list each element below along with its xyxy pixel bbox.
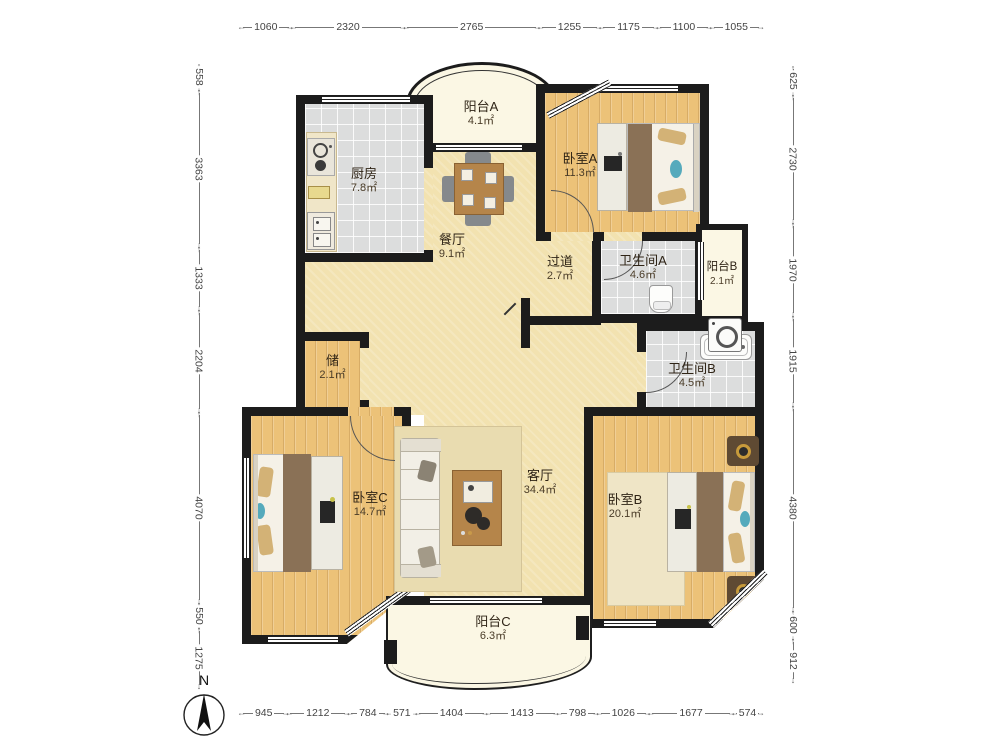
room-label-storage: 储 2.1㎡ (305, 353, 360, 382)
dim-segment: 2320 (292, 20, 405, 34)
room-name: 储 (326, 353, 339, 368)
dim-segment: 798 (558, 706, 598, 720)
window-bedroom-c-left (243, 458, 250, 558)
opening-bathroom-a-door (604, 232, 642, 241)
dim-label: 784 (357, 707, 379, 719)
dim-segment: 550 (192, 603, 206, 629)
dim-label: 1255 (556, 21, 583, 33)
window-balcony-c-top (430, 597, 542, 604)
room-name: 过道 (547, 254, 573, 269)
dim-label: 1333 (192, 265, 206, 292)
room-area: 7.8㎡ (351, 181, 377, 195)
room-label-bathroom-b: 卫生间B 4.5㎡ (654, 361, 730, 390)
dim-label: 945 (253, 707, 275, 719)
dim-label: 558 (192, 66, 206, 88)
bedroom-b-bed (723, 472, 755, 572)
kitchen-small-appliance (308, 186, 330, 199)
room-name: 卧室B (608, 492, 643, 507)
room-bathroom-b: 卫生间B 4.5㎡ (637, 322, 764, 418)
room-name: 客厅 (527, 468, 553, 483)
dining-table (454, 163, 504, 215)
opening-bedroom-c-door (348, 407, 394, 416)
room-label-balcony-a: 阳台A 4.1㎡ (439, 99, 523, 128)
dim-segment: 1055 (711, 20, 762, 34)
room-name: 卫生间B (668, 361, 716, 376)
dim-segment: 912 (786, 639, 800, 682)
room-balcony-c: 阳台C 6.3㎡ (386, 596, 592, 690)
dim-label: 550 (192, 605, 206, 627)
room-area: 4.5㎡ (679, 376, 705, 390)
dim-segment: 1404 (416, 706, 486, 720)
room-area: 2.7㎡ (547, 269, 573, 283)
dim-segment: 2730 (786, 95, 800, 223)
room-area: 34.4㎡ (524, 483, 556, 497)
room-area: 14.7㎡ (354, 505, 386, 519)
ruler-top: 1060232027651255117511001055 (240, 20, 762, 34)
dim-label: 1100 (671, 21, 698, 33)
dim-segment: 558 (192, 64, 206, 90)
dim-label: 1275 (192, 644, 206, 671)
dim-segment: 945 (240, 706, 287, 720)
compass-icon (178, 688, 230, 740)
room-label-bathroom-a: 卫生间A 4.6㎡ (605, 253, 681, 282)
room-area: 2.1㎡ (710, 275, 734, 289)
dim-label: 2204 (192, 347, 206, 374)
dim-segment: 1970 (786, 223, 800, 315)
dim-label: 1413 (508, 707, 535, 719)
dim-segment: 1026 (598, 706, 649, 720)
throw-pillow (417, 459, 437, 482)
room-label-hallway: 过道 2.7㎡ (534, 254, 586, 283)
dim-segment: 1100 (657, 20, 711, 34)
dim-segment: 1212 (287, 706, 348, 720)
room-label-bedroom-b: 卧室B 20.1㎡ (597, 492, 653, 521)
dim-label: 798 (567, 707, 589, 719)
room-area: 11.3㎡ (564, 166, 596, 180)
dim-segment: 4380 (786, 406, 800, 611)
room-name: 卧室C (352, 490, 387, 505)
dim-label: 1175 (615, 21, 642, 33)
room-storage: 储 2.1㎡ (296, 332, 369, 417)
bedroom-b-blanket (697, 472, 723, 572)
dim-segment: 2204 (192, 310, 206, 413)
dim-segment: 3363 (192, 90, 206, 247)
pillow (727, 532, 745, 564)
dim-label: 4070 (192, 494, 206, 521)
dim-label: 1677 (677, 707, 704, 719)
dim-label: 2320 (334, 21, 361, 33)
room-name: 卫生间A (619, 253, 667, 268)
window-balcony-a-bottom (436, 144, 522, 151)
compass: N (178, 672, 230, 744)
dim-segment: 625 (786, 66, 800, 95)
pillow (657, 127, 687, 146)
dim-segment: 1175 (600, 20, 657, 34)
room-label-balcony-c: 阳台C 6.3㎡ (463, 614, 523, 643)
opening-storage-door (360, 348, 369, 400)
room-name: 阳台C (475, 614, 510, 629)
dim-label: 2730 (786, 146, 800, 173)
room-name: 厨房 (351, 166, 377, 181)
ruler-right: 6252730197019154380600912 (786, 66, 800, 682)
dim-label: 1915 (786, 347, 800, 374)
dim-label: 574 (737, 707, 759, 719)
dim-label: 2765 (458, 21, 485, 33)
dim-label: 625 (786, 70, 800, 92)
dim-segment: 784 (348, 706, 387, 720)
bedroom-b-cabinet (667, 472, 697, 572)
room-name: 餐厅 (439, 232, 465, 247)
dim-label: 1404 (438, 707, 465, 719)
room-name: 阳台A (464, 99, 499, 114)
room-area: 4.1㎡ (468, 114, 494, 128)
dim-segment: 1677 (649, 706, 733, 720)
room-area: 6.3㎡ (480, 629, 506, 643)
room-label-living: 客厅 34.4㎡ (512, 468, 568, 497)
room-area: 20.1㎡ (609, 507, 641, 521)
dim-label: 600 (786, 614, 800, 636)
room-area: 2.1㎡ (319, 368, 345, 382)
dim-label: 1055 (723, 21, 750, 33)
compass-north-label: N (178, 672, 230, 688)
room-label-bedroom-a: 卧室A 11.3㎡ (547, 151, 613, 180)
dim-label: 3363 (192, 155, 206, 182)
pillow (256, 524, 274, 556)
dining-set (442, 152, 514, 226)
bedroom-a-bed (627, 123, 700, 211)
toilet-icon (649, 285, 673, 313)
stove-icon (307, 138, 335, 176)
washing-machine-icon (708, 318, 742, 352)
dim-segment: 574 (733, 706, 762, 720)
dim-label: 571 (391, 707, 413, 719)
sink-icon (307, 212, 335, 250)
window-bedroom-a-top (600, 85, 678, 92)
balcony-c-post-right (576, 616, 589, 640)
room-label-kitchen: 厨房 7.8㎡ (333, 166, 395, 195)
room-label-dining: 餐厅 9.1㎡ (428, 232, 476, 261)
pillow (256, 466, 274, 498)
floorplan-page: { "compass": {"label": "N"}, "dimensions… (0, 0, 1000, 750)
room-area: 4.6㎡ (630, 268, 656, 282)
pillow (657, 187, 687, 206)
dim-segment: 1060 (240, 20, 292, 34)
dim-label: 1026 (610, 707, 637, 719)
pillow (727, 480, 745, 512)
dim-segment: 1333 (192, 247, 206, 309)
coffee-table (452, 470, 502, 546)
sofa (400, 438, 440, 578)
nightstand (727, 436, 759, 466)
dim-segment: 1255 (539, 20, 600, 34)
dim-label: 4380 (786, 495, 800, 522)
dim-segment: 571 (388, 706, 417, 720)
dim-label: 1212 (304, 707, 331, 719)
window-bedroom-c-bottom (268, 636, 338, 643)
opening-bedroom-a-door (551, 232, 593, 241)
dim-segment: 4070 (192, 412, 206, 602)
ruler-left: 55833631333220440705501275 (192, 64, 206, 688)
dim-label: 1970 (786, 256, 800, 283)
ruler-bottom: 94512127845711404141379810261677574 (240, 706, 762, 720)
dim-segment: 600 (786, 611, 800, 639)
room-kitchen: 厨房 7.8㎡ (296, 95, 433, 262)
dim-label: 1060 (252, 21, 279, 33)
dim-label: 912 (786, 650, 800, 672)
throw-pillow (417, 546, 437, 569)
dim-segment: 1413 (487, 706, 558, 720)
balcony-c-post-left (384, 640, 397, 664)
room-name: 阳台B (707, 260, 738, 275)
room-label-balcony-b: 阳台B 2.1㎡ (700, 260, 744, 289)
room-name: 卧室A (563, 151, 598, 166)
bedroom-c-blanket (283, 454, 311, 572)
room-area: 9.1㎡ (439, 247, 465, 261)
dim-segment: 1915 (786, 316, 800, 406)
dim-segment: 2765 (404, 20, 539, 34)
wall-hall-horizontal (521, 316, 601, 325)
window-kitchen-top (322, 96, 410, 103)
opening-bathroom-b-door (637, 352, 646, 392)
room-balcony-b: 阳台B 2.1㎡ (696, 224, 748, 322)
window-bedroom-b-bottom (604, 620, 656, 627)
